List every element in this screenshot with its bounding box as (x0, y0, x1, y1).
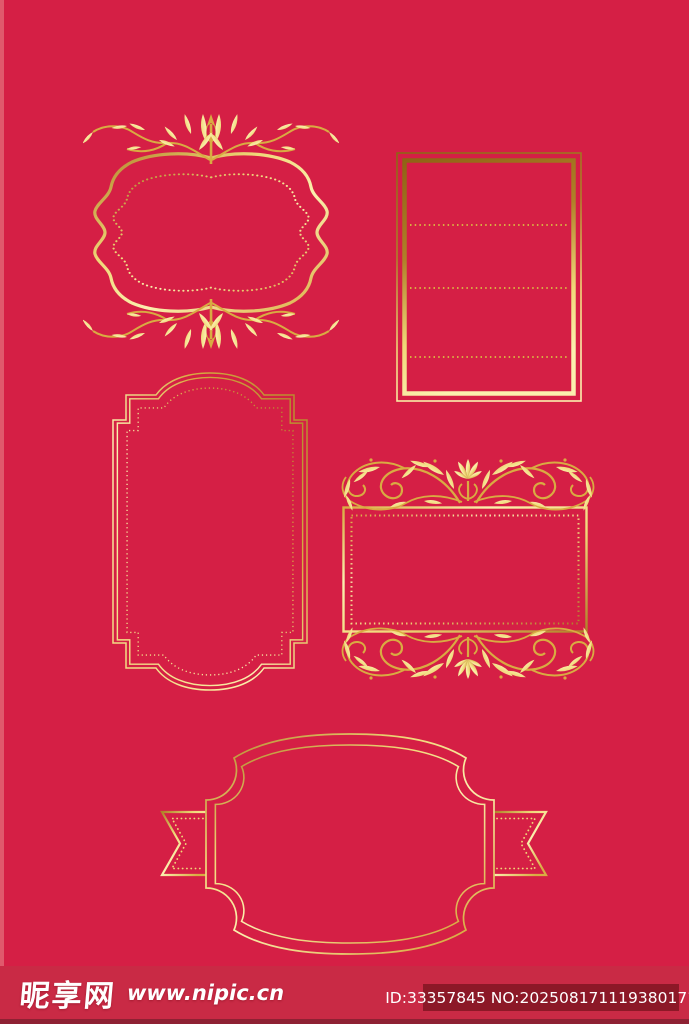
ornate-bracket-frame (83, 110, 339, 350)
ribbon-left (162, 812, 206, 875)
image-id-text: ID:33357845 NO:20250817111938017102 (385, 989, 689, 1007)
frames-canvas: 昵享网 www.nipic.cn ID:33357845 NO:20250817… (0, 0, 689, 1024)
site-logo: 昵享网 www.nipic.cn (20, 971, 284, 1015)
left-edge-strip (0, 0, 4, 1024)
leafy-vine-ornament (83, 114, 339, 164)
lined-panel-frame (396, 152, 582, 402)
site-name: 昵享网 (18, 971, 118, 1015)
damask-flourish-band (337, 454, 598, 511)
flourish-rect-frame (335, 446, 601, 694)
ribbon-right (494, 812, 546, 875)
bar-bottom-edge (0, 1019, 689, 1024)
badge-ribbon-frame (150, 730, 550, 958)
site-url: www.nipic.cn (127, 981, 284, 1005)
dotted-divider-lines (410, 225, 568, 357)
image-id-badge: ID:33357845 NO:20250817111938017102 (423, 984, 679, 1011)
arched-panel-frame (110, 371, 310, 692)
